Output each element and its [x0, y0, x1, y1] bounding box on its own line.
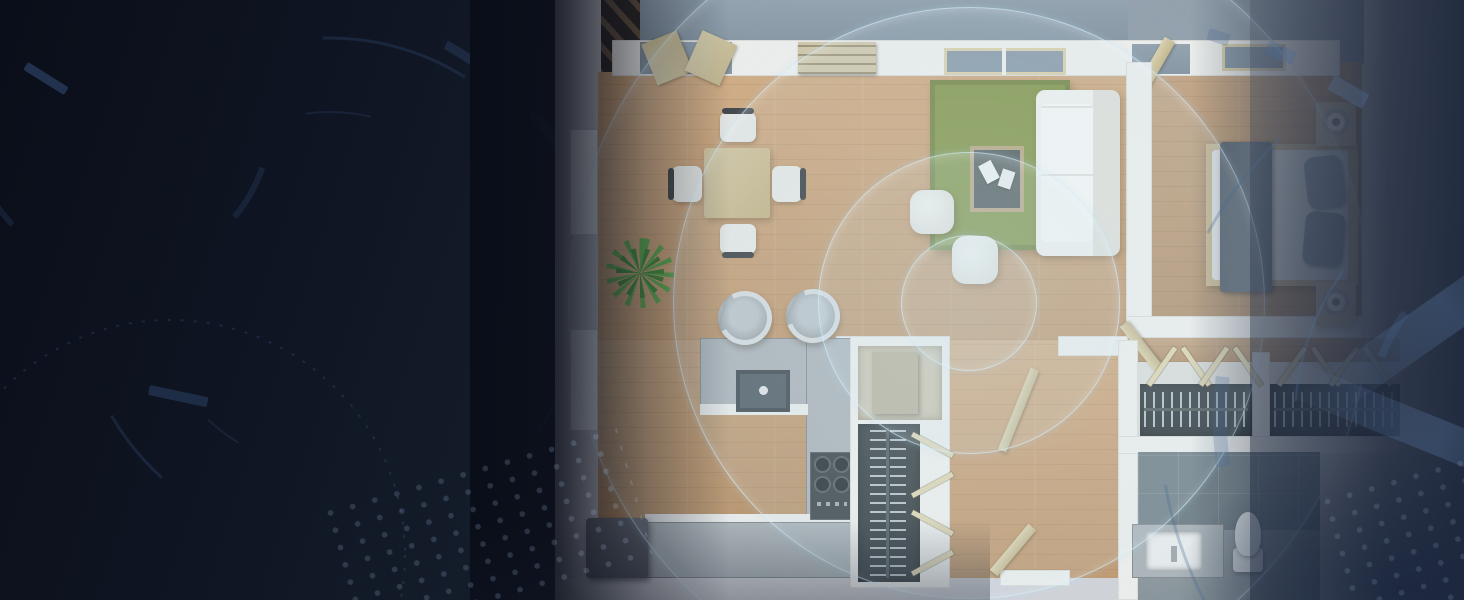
hero-banner: Top-down 3D render of a one-bedroom apar…	[0, 0, 1464, 600]
wifi-ring-inner	[901, 235, 1037, 371]
left-shadow-overlay	[470, 0, 730, 600]
bottom-shadow-overlay	[470, 520, 990, 600]
